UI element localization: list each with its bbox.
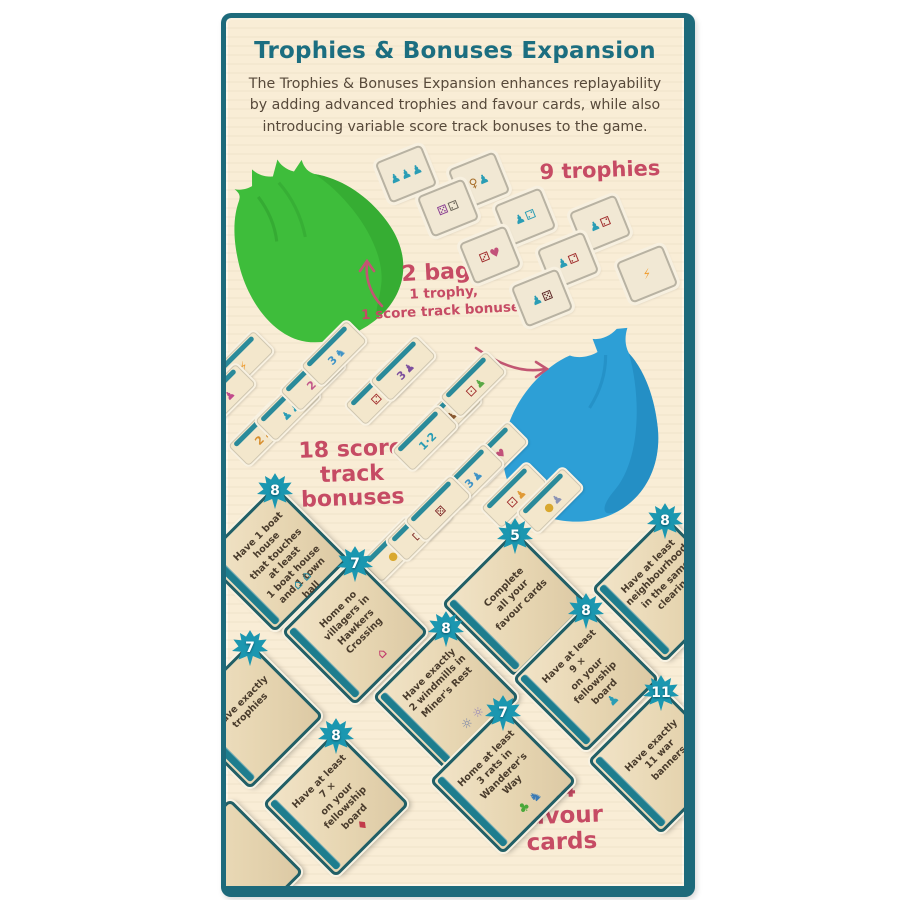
leaf-badge: 7 — [232, 630, 268, 666]
rat-icon: ♞ — [527, 788, 544, 805]
leaf-badge: 8 — [568, 593, 604, 629]
dice-icon: ⚄ — [433, 504, 448, 519]
leaf-badge: 8 — [647, 503, 683, 539]
leaf-badge: 5 — [497, 518, 533, 554]
windmill-icon: ☼ — [459, 715, 476, 732]
description-text: The Trophies & Bonuses Expansion enhance… — [242, 74, 668, 138]
count-label: 1·2 — [417, 430, 439, 452]
trophies-count-label: 9 trophies — [515, 155, 686, 185]
card-title-strip — [221, 866, 236, 897]
fellowship-icon: ♟ — [605, 692, 622, 709]
leaf-badge: 8 — [318, 718, 354, 754]
house-icon: ⌂ — [375, 646, 390, 661]
leaf-badge: 11 — [643, 675, 679, 711]
fellowship-icon: ♦ — [355, 817, 372, 834]
leaf-badge: 7 — [337, 546, 373, 582]
card-number: 8 — [568, 593, 604, 629]
card-number: 8 — [647, 503, 683, 539]
card-number: 7 — [232, 630, 268, 666]
card-number: 5 — [497, 518, 533, 554]
lightning-icon: ⚡ — [641, 267, 653, 281]
trophy-tile: ⚡ — [616, 244, 679, 304]
card-number: 8 — [318, 718, 354, 754]
meeple-icon: ♟ — [222, 388, 237, 403]
card-text: Complete all your favour cards — [471, 555, 555, 639]
card-number: 7 — [337, 546, 373, 582]
page-title: Trophies & Bonuses Expansion — [226, 38, 684, 64]
leaf-badge: 8 — [428, 611, 464, 647]
expansion-panel: Trophies & Bonuses Expansion The Trophie… — [221, 13, 695, 897]
card-number: 8 — [257, 473, 293, 509]
leaf-icon: ♣ — [516, 799, 533, 816]
leaf-badge: 8 — [257, 473, 293, 509]
card-number: 7 — [485, 695, 521, 731]
card-text: Have exactly trophies — [221, 669, 285, 745]
leaf-badge: 7 — [485, 695, 521, 731]
card-number: 11 — [643, 675, 679, 711]
page: { "palette":{ "panel_border_teal":"#1d6a… — [0, 0, 900, 900]
card-number: 8 — [428, 611, 464, 647]
